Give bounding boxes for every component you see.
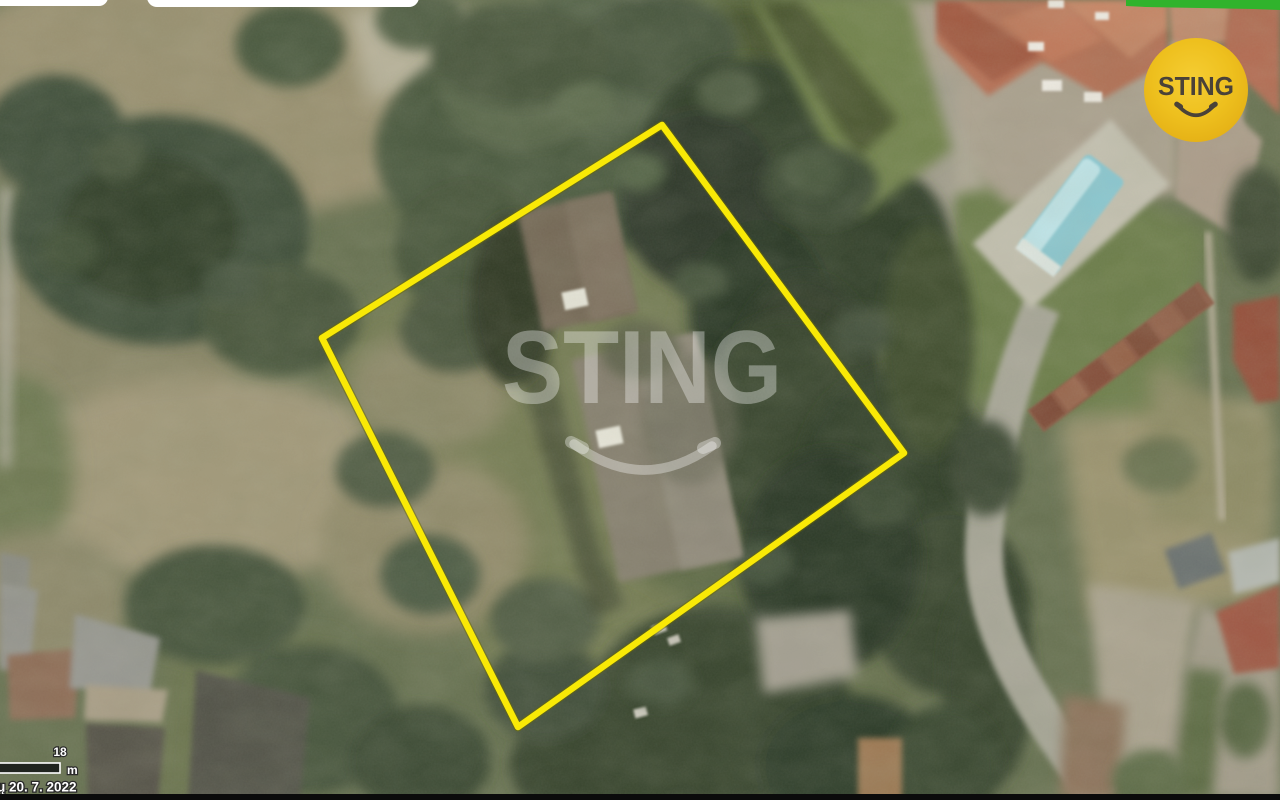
svg-text:STING: STING <box>1158 71 1234 101</box>
svg-text:18: 18 <box>53 745 67 759</box>
svg-text:ų 20. 7. 2022: ų 20. 7. 2022 <box>0 780 77 795</box>
svg-text:m: m <box>67 763 78 777</box>
svg-text:STING: STING <box>502 310 782 426</box>
